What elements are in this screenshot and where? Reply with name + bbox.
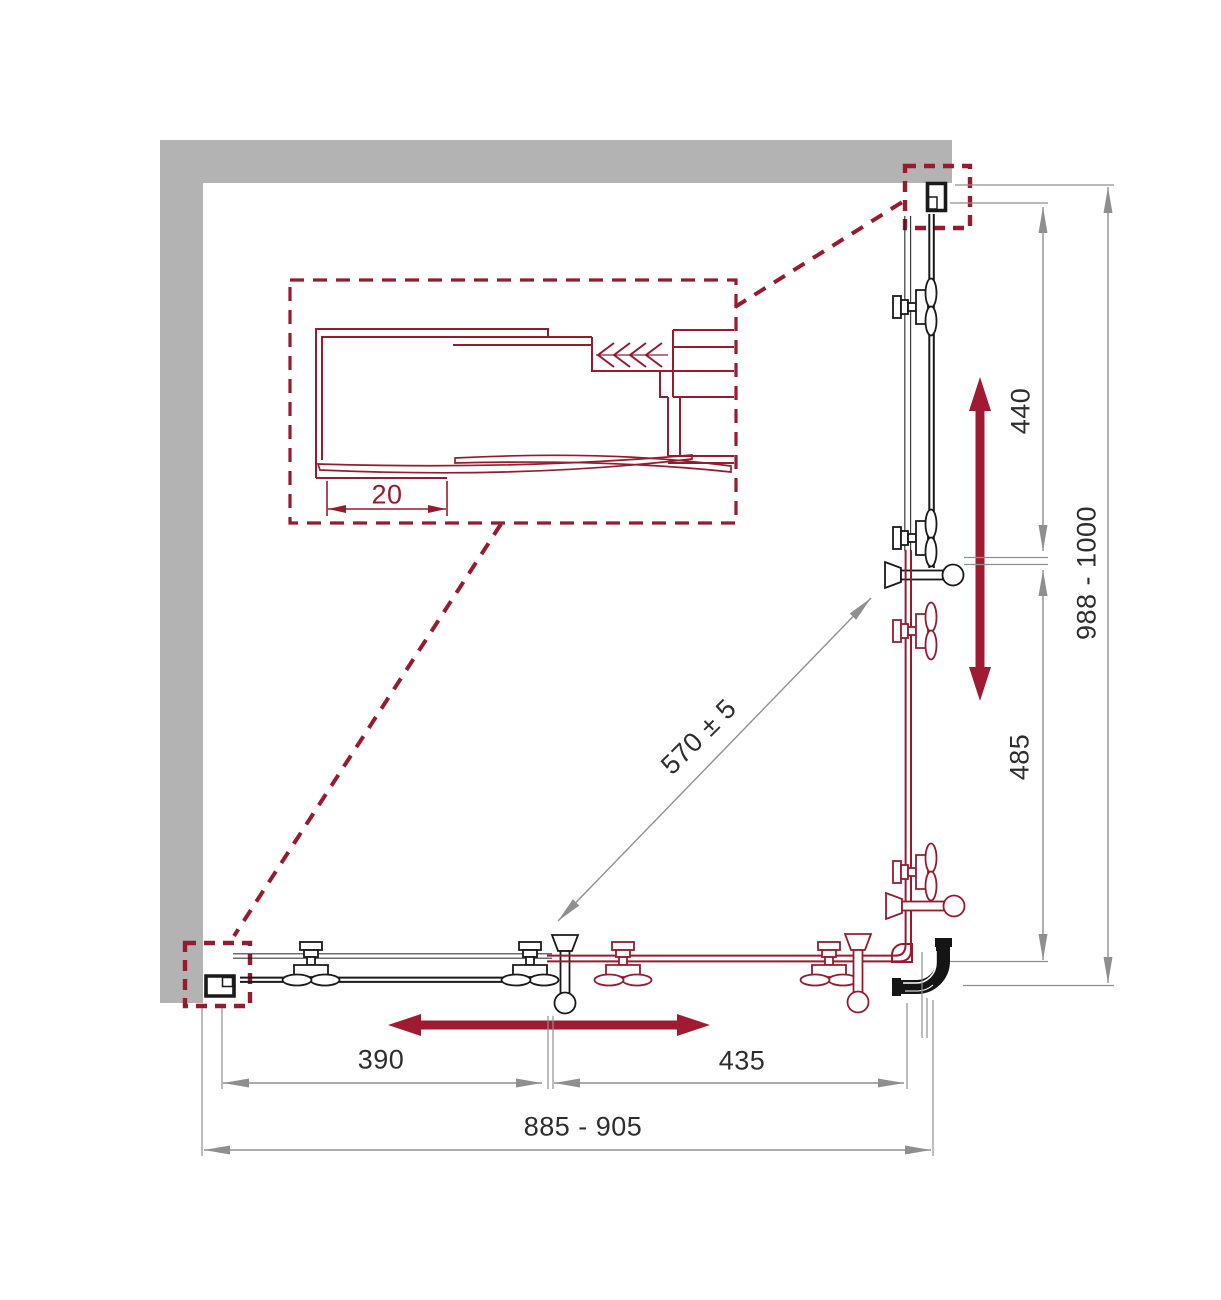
dim-label-right-overall: 988 - 1000 bbox=[1072, 506, 1103, 640]
door-handle-knob bbox=[552, 935, 578, 1014]
wall bbox=[160, 140, 952, 1003]
drawing-svg bbox=[0, 0, 1221, 1300]
roller-bracket bbox=[595, 942, 652, 986]
bottom-red-door bbox=[547, 934, 912, 1013]
wall-profile-detail bbox=[316, 329, 734, 478]
red-door-glass-line bbox=[896, 550, 906, 956]
dim-label-bottom-overall: 885 - 905 bbox=[524, 1112, 643, 1143]
dim-label-right-upper: 440 bbox=[1006, 388, 1037, 435]
bottom-door-assembly bbox=[206, 935, 578, 1014]
callout-link-top-right bbox=[735, 201, 904, 307]
right-fixed-rail-lines bbox=[905, 216, 911, 551]
roller-bracket bbox=[502, 942, 559, 986]
dim-label-bottom-right: 435 bbox=[719, 1046, 766, 1077]
callout-link-bottom-left bbox=[234, 524, 501, 936]
detail-callout bbox=[290, 280, 736, 523]
dim-line-diagonal-570 bbox=[558, 598, 871, 921]
wall-left-band bbox=[160, 140, 203, 1003]
door-handle-knob bbox=[845, 934, 871, 1013]
detail-callout-box bbox=[290, 280, 736, 523]
roller-bracket bbox=[893, 844, 937, 901]
roller-bracket bbox=[893, 603, 937, 660]
bottom-fixed-rail-lines bbox=[233, 954, 552, 958]
shower-enclosure-plan-drawing: 20 390 435 885 - 905 440 485 988 - 1000 … bbox=[0, 0, 1221, 1300]
door-handle-knob bbox=[885, 562, 964, 588]
roller-bracket bbox=[283, 942, 340, 986]
dim-label-detail-offset: 20 bbox=[371, 480, 402, 511]
roller-bracket bbox=[893, 510, 937, 567]
right-door-assembly bbox=[885, 184, 964, 589]
wall-profile-top-right bbox=[928, 184, 946, 211]
callout-link-lines bbox=[234, 201, 904, 936]
dim-label-bottom-left: 390 bbox=[358, 1045, 405, 1076]
dim-label-right-lower: 485 bbox=[1005, 734, 1036, 781]
right-red-door bbox=[886, 550, 965, 961]
slide-direction-arrow-horizontal bbox=[388, 1014, 710, 1036]
door-handle-knob bbox=[886, 893, 965, 919]
roller-bracket bbox=[801, 942, 858, 986]
roller-bracket bbox=[893, 279, 937, 336]
wall-profile-bottom-left bbox=[206, 976, 234, 996]
slide-direction-arrow-vertical bbox=[969, 377, 991, 701]
anchor-screw-chevrons bbox=[596, 343, 668, 367]
wall-top-band bbox=[160, 140, 952, 183]
